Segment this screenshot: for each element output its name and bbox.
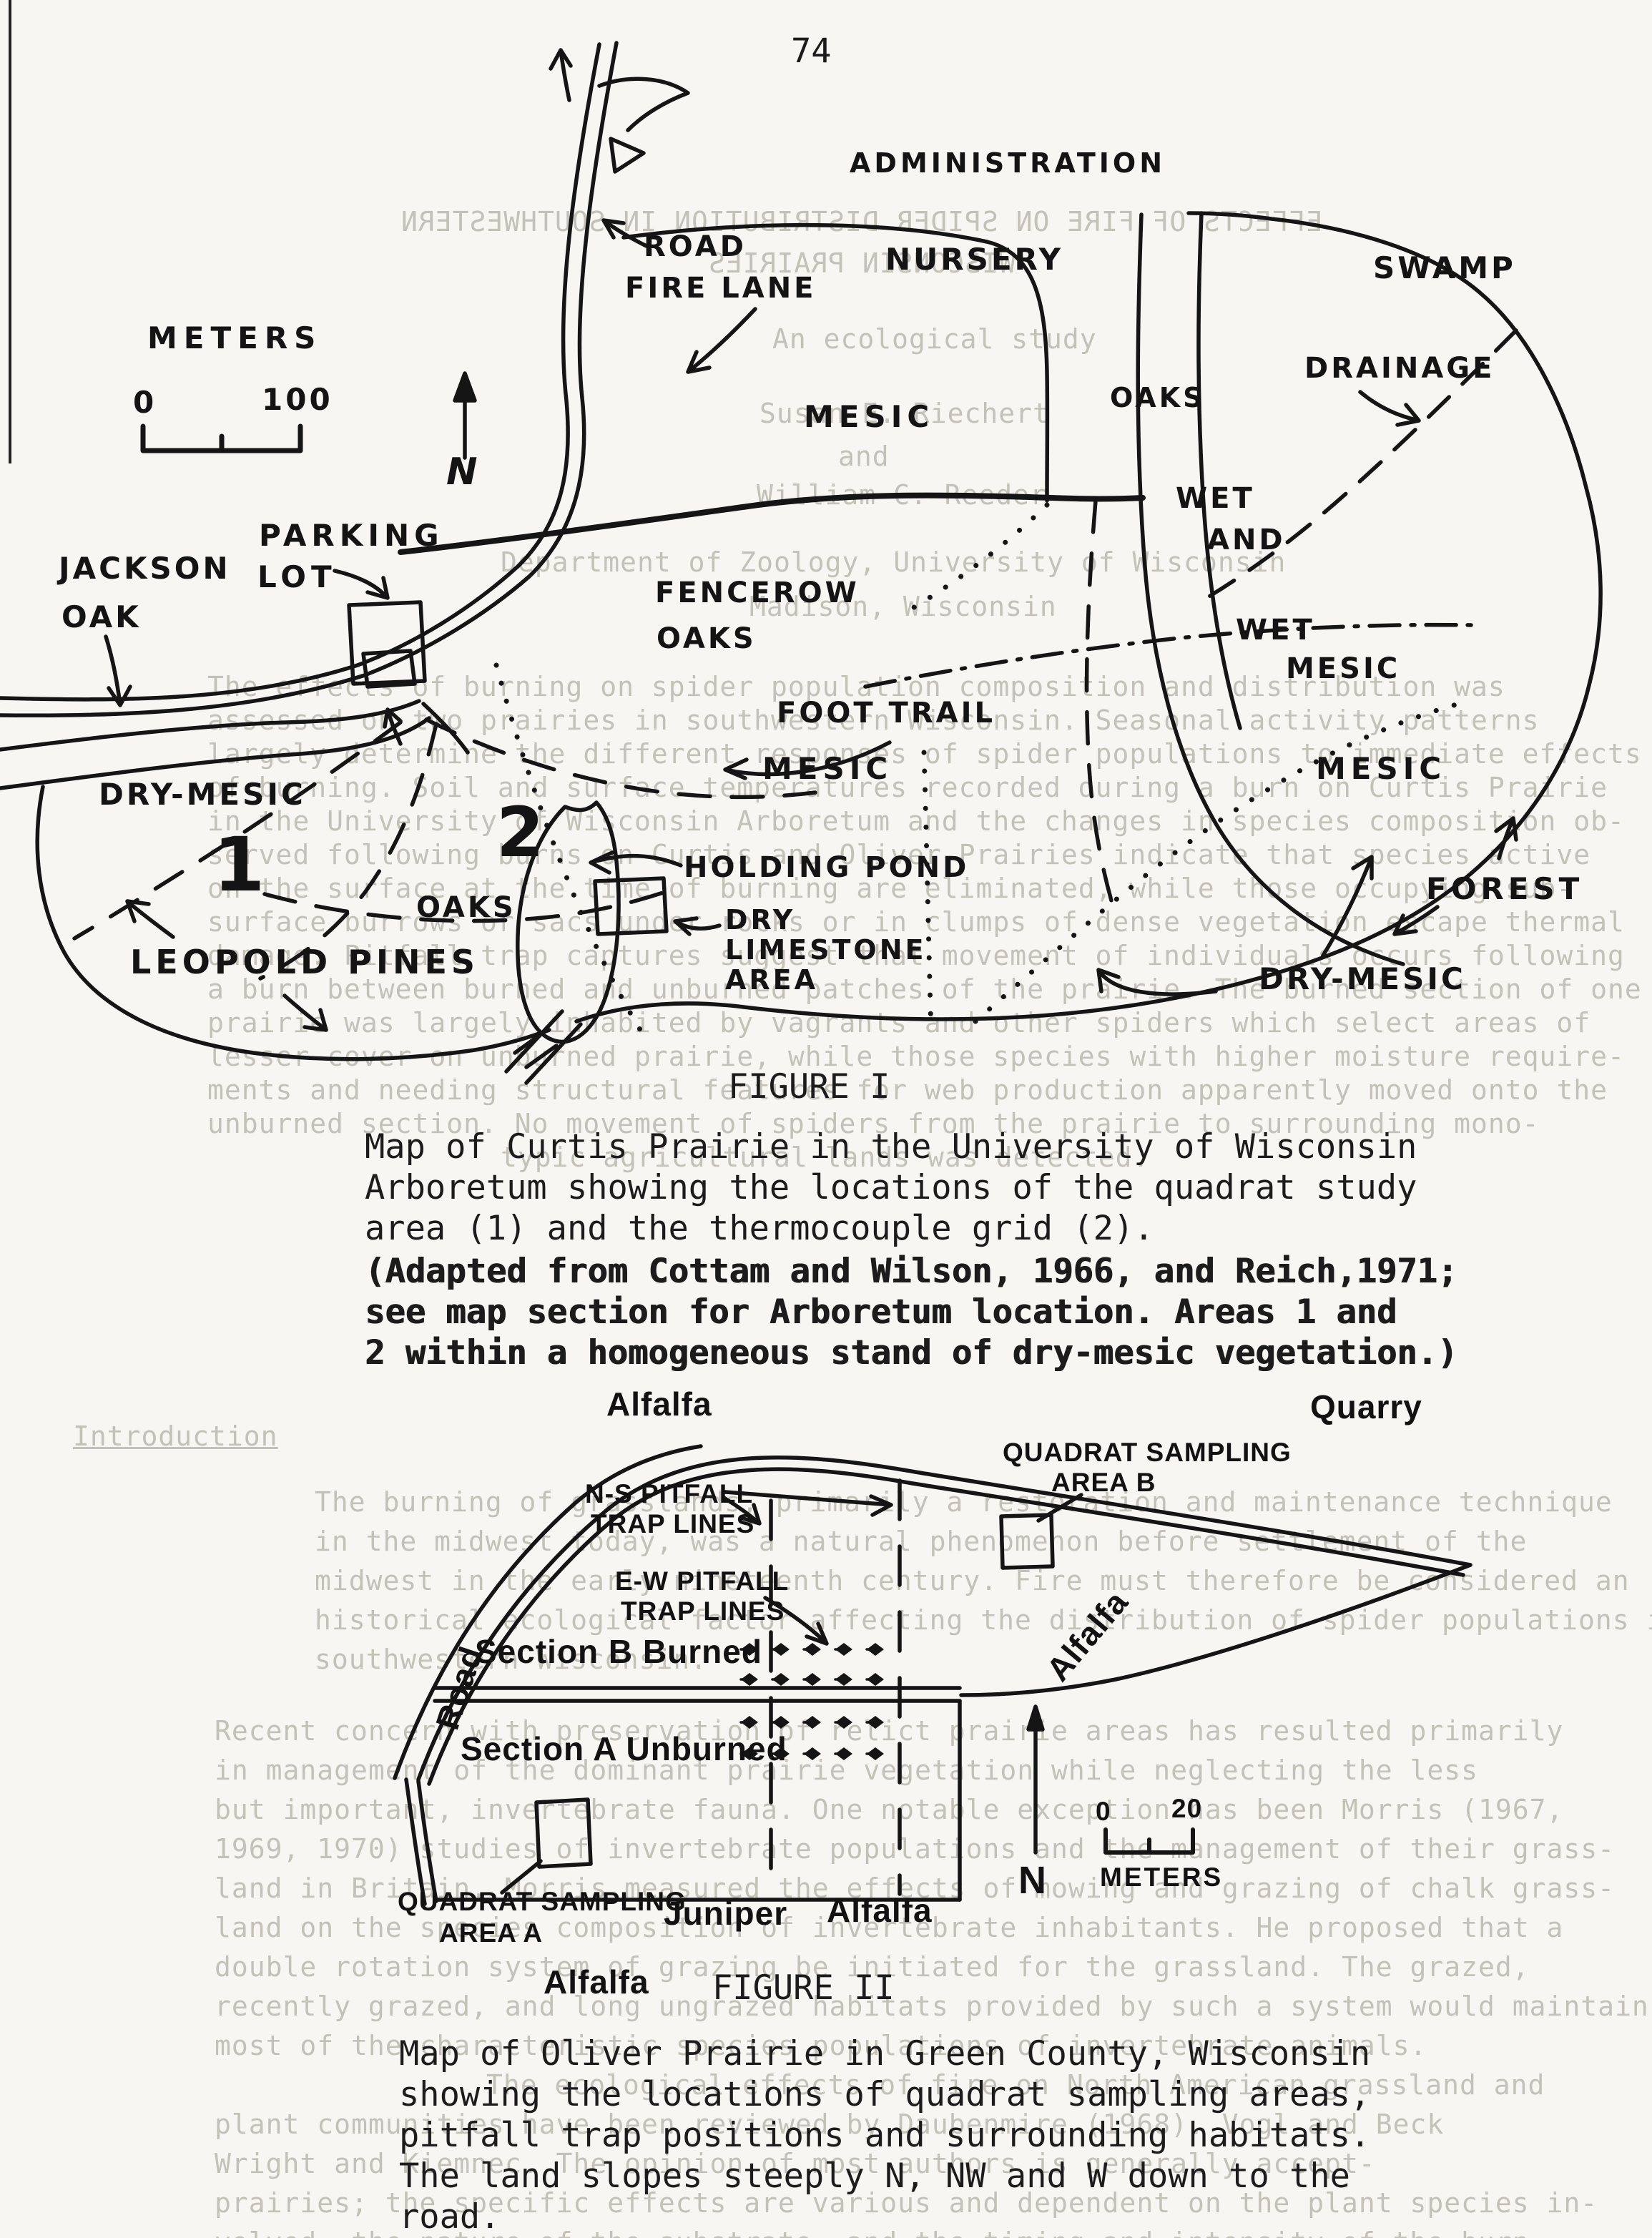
fig1-label-dry: DRY [725, 904, 795, 936]
fig1-north-label: N [446, 451, 481, 494]
fig1-label-nursery: NURSERY [885, 242, 1063, 277]
fig1-label-forest: FOREST [1426, 871, 1583, 906]
fig2-scale-twenty: 20 [1171, 1794, 1202, 1824]
fig1-caption-adapted-line: (Adapted from Cottam and Wilson, 1966, a… [365, 1252, 1457, 1291]
scanned-page: EFFECTS OF FIRE ON SPIDER DISTRIBUTION I… [0, 0, 1652, 2238]
fig1-fencerow-lines [1138, 213, 1403, 964]
fig2-scale-bar [1106, 1830, 1193, 1852]
fig1-caption-line: area (1) and the thermocouple grid (2). [365, 1209, 1154, 1248]
fig1-label-fencerow: FENCEROW [655, 576, 860, 609]
fig1-label-area: AREA [725, 964, 818, 996]
fig2-field-boundary [395, 1446, 1470, 1904]
fig1-label-mesic-center: MESIC [762, 751, 893, 786]
fig1-scale-zero: 0 [133, 385, 157, 420]
fig1-label-mesic-right: MESIC [1316, 751, 1446, 786]
fig2-caption-line: The land slopes steeply N, NW and W down… [399, 2156, 1350, 2196]
fig2-section-fence [435, 1688, 960, 1701]
fig2-label-ew-pitfall2: TRAP LINES [621, 1596, 785, 1626]
fig1-scale-hundred: 100 [262, 382, 333, 417]
fig1-caption-line: Map of Curtis Prairie in the University … [365, 1127, 1417, 1167]
fig1-area2-number: 2 [496, 792, 544, 873]
fig1-label-jackson-oak: OAK [62, 599, 142, 634]
fig1-road [0, 43, 688, 788]
fig1-label-holding-pond: HOLDING POND [684, 851, 969, 884]
fig1-caption-line: Arboretum showing the locations of the q… [365, 1168, 1417, 1207]
fig1-label-fencerow-oaks: OAKS [657, 622, 757, 655]
fig1-label-meters: METERS [147, 320, 322, 355]
page-number: 74 [791, 31, 832, 71]
fig2-caption-line: Map of Oliver Prairie in Green County, W… [399, 2034, 1370, 2073]
fig1-label-mesic-wet: MESIC [1286, 652, 1400, 685]
fig1-caption-adapted-line: 2 within a homogeneous stand of dry-mesi… [365, 1333, 1457, 1373]
fig2-scale-zero: 0 [1096, 1797, 1111, 1827]
fig1-label-wet2: WET [1236, 614, 1315, 647]
fig2-label-quadrat-b1: QUADRAT SAMPLING [1003, 1438, 1292, 1468]
fig1-label-oaks-top: OAKS [1110, 382, 1206, 413]
fig2-label-ew-pitfall1: E-W PITFALL [615, 1566, 789, 1596]
fig2-label-section-a: Section A Unburned [461, 1729, 787, 1768]
fig1-label-administration: ADMINISTRATION [850, 147, 1166, 179]
fig1-label-drainage: DRAINAGE [1304, 352, 1495, 385]
fig1-label-wet1: WET [1176, 482, 1255, 515]
fig2-label-juniper: Juniper [664, 1894, 787, 1933]
fig2-heading: FIGURE II [712, 1968, 895, 2008]
fig1-heading: FIGURE I [728, 1067, 890, 1106]
fig2-label-quarry: Quarry [1310, 1388, 1422, 1426]
fig1-area1-number: 1 [213, 821, 265, 908]
fig1-label-parking-lot: LOT [257, 559, 337, 594]
fig2-label-ns-pitfall2: TRAP LINES [591, 1509, 754, 1539]
fig1-label-road: ROAD [644, 230, 747, 263]
fig2-label-quadrat-a1: QUADRAT SAMPLING [398, 1887, 687, 1917]
fig1-label-leopold-pines: LEOPOLD PINES [130, 943, 479, 981]
fig2-quadrat-a [502, 1800, 591, 1893]
fig1-caption-adapted-line: see map section for Arboretum location. … [365, 1292, 1397, 1332]
fig1-label-limestone: LIMESTONE [725, 934, 926, 966]
fig2-label-quadrat-b2: AREA B [1051, 1468, 1156, 1498]
fig1-scale-bar [143, 426, 300, 451]
fig2-north-arrow [1028, 1707, 1043, 1852]
fig2-label-alfalfa-top: Alfalfa [606, 1385, 712, 1423]
fig2-label-quadrat-a2: AREA A [439, 1918, 543, 1948]
fig2-label-alfalfa-bottom: Alfalfa [544, 1963, 649, 2001]
fig1-label-and: AND [1207, 524, 1286, 556]
fig1-label-jackson: JACKSON [59, 551, 231, 586]
fig1-label-dry-mesic-right: DRY-MESIC [1259, 961, 1466, 996]
fig2-label-alfalfa-mid: Alfalfa [827, 1891, 933, 1930]
fig1-north-arrow [455, 373, 475, 458]
fig2-label-ns-pitfall1: N-S PITFALL [585, 1479, 753, 1509]
fig2-scale-units: METERS [1100, 1862, 1223, 1893]
fig1-label-parking: PARKING [259, 518, 444, 553]
fig2-label-section-b: Section B Burned [475, 1632, 762, 1671]
fig1-label-oaks-center: OAKS [416, 891, 516, 924]
fig1-south-road-stub [506, 1011, 581, 1083]
fig1-label-foot-trail: FOOT TRAIL [777, 697, 995, 730]
fig1-label-fire-lane: FIRE LANE [625, 272, 817, 305]
fig2-north-label: N [1018, 1858, 1046, 1903]
fig2-caption-line: road. [399, 2197, 500, 2237]
fig1-label-swamp: SWAMP [1373, 250, 1516, 285]
fig1-label-mesic-top: MESIC [804, 399, 934, 434]
fig2-caption-line: showing the locations of quadrat samplin… [399, 2075, 1370, 2114]
fig2-caption-line: pitfall trap positions and surrounding h… [399, 2116, 1370, 2155]
fig1-label-dry-mesic-left: DRY-MESIC [99, 777, 306, 812]
